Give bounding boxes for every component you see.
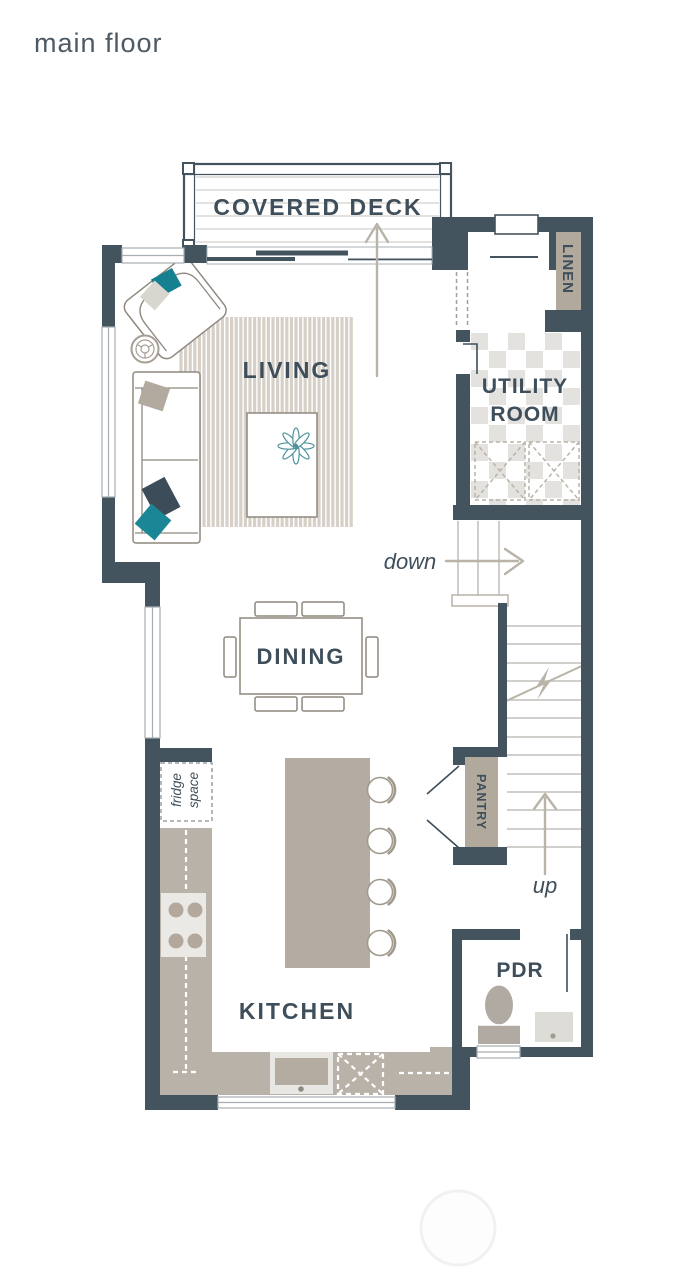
label-utility-room-line1: UTILITY xyxy=(482,375,568,398)
stove xyxy=(161,893,206,957)
label-pdr: PDR xyxy=(496,959,543,982)
stairs-down-run xyxy=(446,521,523,606)
stair-break-line xyxy=(504,664,586,702)
side-table xyxy=(132,336,159,363)
watermark-circle xyxy=(421,1191,495,1265)
label-covered-deck: COVERED DECK xyxy=(213,194,422,220)
dining-chair xyxy=(302,602,344,616)
island-stools xyxy=(368,778,396,956)
label-fridge-space-line2: space xyxy=(186,772,201,808)
dining-chair xyxy=(224,637,236,677)
coffee-table xyxy=(247,413,317,517)
label-stairs-down: down xyxy=(384,549,437,574)
up-arrow xyxy=(534,794,556,874)
label-dining: DINING xyxy=(257,644,346,669)
front-door xyxy=(490,215,538,257)
floor-plan-page: main floor xyxy=(0,0,700,1270)
entry-cased-opening xyxy=(457,272,468,328)
page-title: main floor xyxy=(34,28,163,59)
label-linen: LINEN xyxy=(559,244,576,294)
label-fridge-space-line1: fridge xyxy=(169,773,184,807)
dining-chair xyxy=(302,697,344,711)
sofa xyxy=(133,372,200,543)
dining-chair xyxy=(255,697,297,711)
label-living: LIVING xyxy=(243,357,332,383)
kitchen-sink xyxy=(270,1052,333,1094)
pantry-doors xyxy=(427,766,459,848)
plant xyxy=(278,428,314,464)
dining-chair xyxy=(366,637,378,677)
floor-plan-drawing: COVERED DECK LIVING DINING KITCHEN UTILI… xyxy=(0,0,700,1270)
stairs-up-run xyxy=(504,626,586,874)
label-utility-room-line2: ROOM xyxy=(490,403,559,426)
sliding-deck-door xyxy=(207,247,432,264)
pdr-sink xyxy=(535,1012,573,1042)
label-pantry: PANTRY xyxy=(474,774,488,830)
toilet xyxy=(476,986,522,1045)
label-kitchen: KITCHEN xyxy=(239,998,355,1024)
dining-chair xyxy=(255,602,297,616)
kitchen-island xyxy=(285,758,370,968)
label-stairs-up: up xyxy=(533,873,557,898)
